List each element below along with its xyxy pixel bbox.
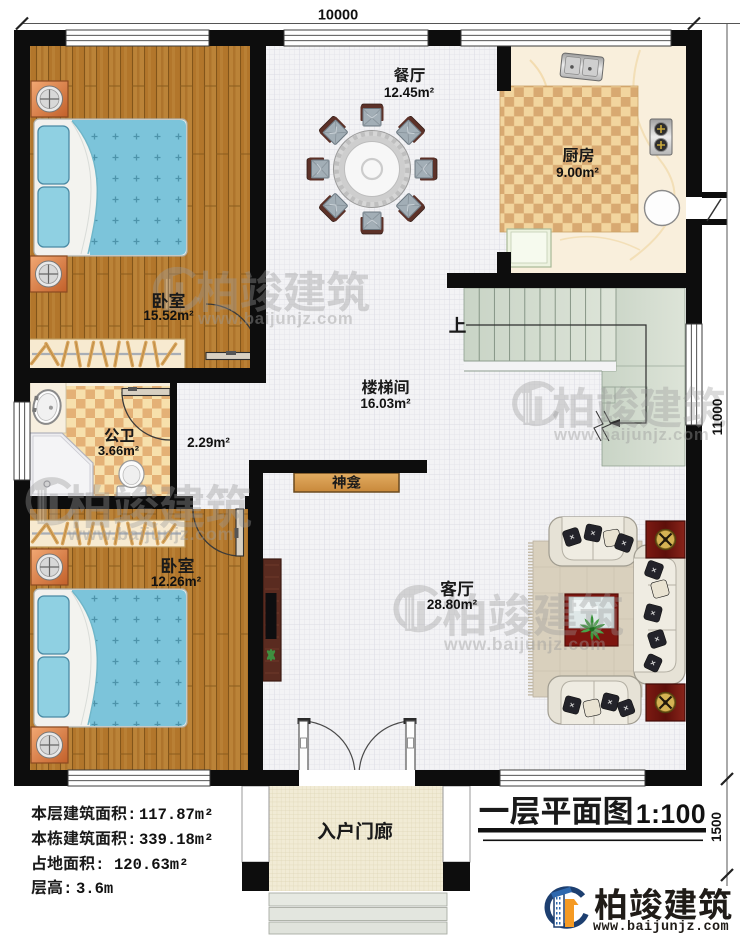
svg-text:3.66m²: 3.66m² xyxy=(98,443,140,458)
svg-text:9.00m²: 9.00m² xyxy=(556,165,599,180)
svg-text:11000: 11000 xyxy=(710,399,725,436)
svg-text::: : xyxy=(127,806,137,824)
svg-text:120.63m²: 120.63m² xyxy=(114,856,188,874)
svg-text::: : xyxy=(127,831,137,849)
svg-text:16.03m²: 16.03m² xyxy=(360,396,411,411)
svg-text::: : xyxy=(63,880,73,898)
svg-text::: : xyxy=(95,856,105,874)
svg-text:www.baijunjz.com: www.baijunjz.com xyxy=(197,309,353,328)
svg-text:www.baijunjz.com: www.baijunjz.com xyxy=(443,634,607,654)
svg-text:2.29m²: 2.29m² xyxy=(187,435,230,450)
svg-text:28.80m²: 28.80m² xyxy=(427,597,478,612)
svg-text:15.52m²: 15.52m² xyxy=(143,308,194,323)
svg-text:3.6m: 3.6m xyxy=(76,880,113,898)
svg-text:www.baijunjz.com: www.baijunjz.com xyxy=(593,920,729,935)
svg-text:12.26m²: 12.26m² xyxy=(151,574,202,589)
svg-text:339.18m²: 339.18m² xyxy=(139,831,213,849)
svg-text:1:100: 1:100 xyxy=(636,799,706,829)
svg-text:117.87m²: 117.87m² xyxy=(139,806,213,824)
svg-text:1500: 1500 xyxy=(709,812,724,842)
svg-text:www.baijunjz.com: www.baijunjz.com xyxy=(553,425,709,444)
svg-text:www.baijunjz.com: www.baijunjz.com xyxy=(67,524,234,544)
svg-text:12.45m²: 12.45m² xyxy=(384,85,435,100)
svg-text:10000: 10000 xyxy=(318,8,358,24)
